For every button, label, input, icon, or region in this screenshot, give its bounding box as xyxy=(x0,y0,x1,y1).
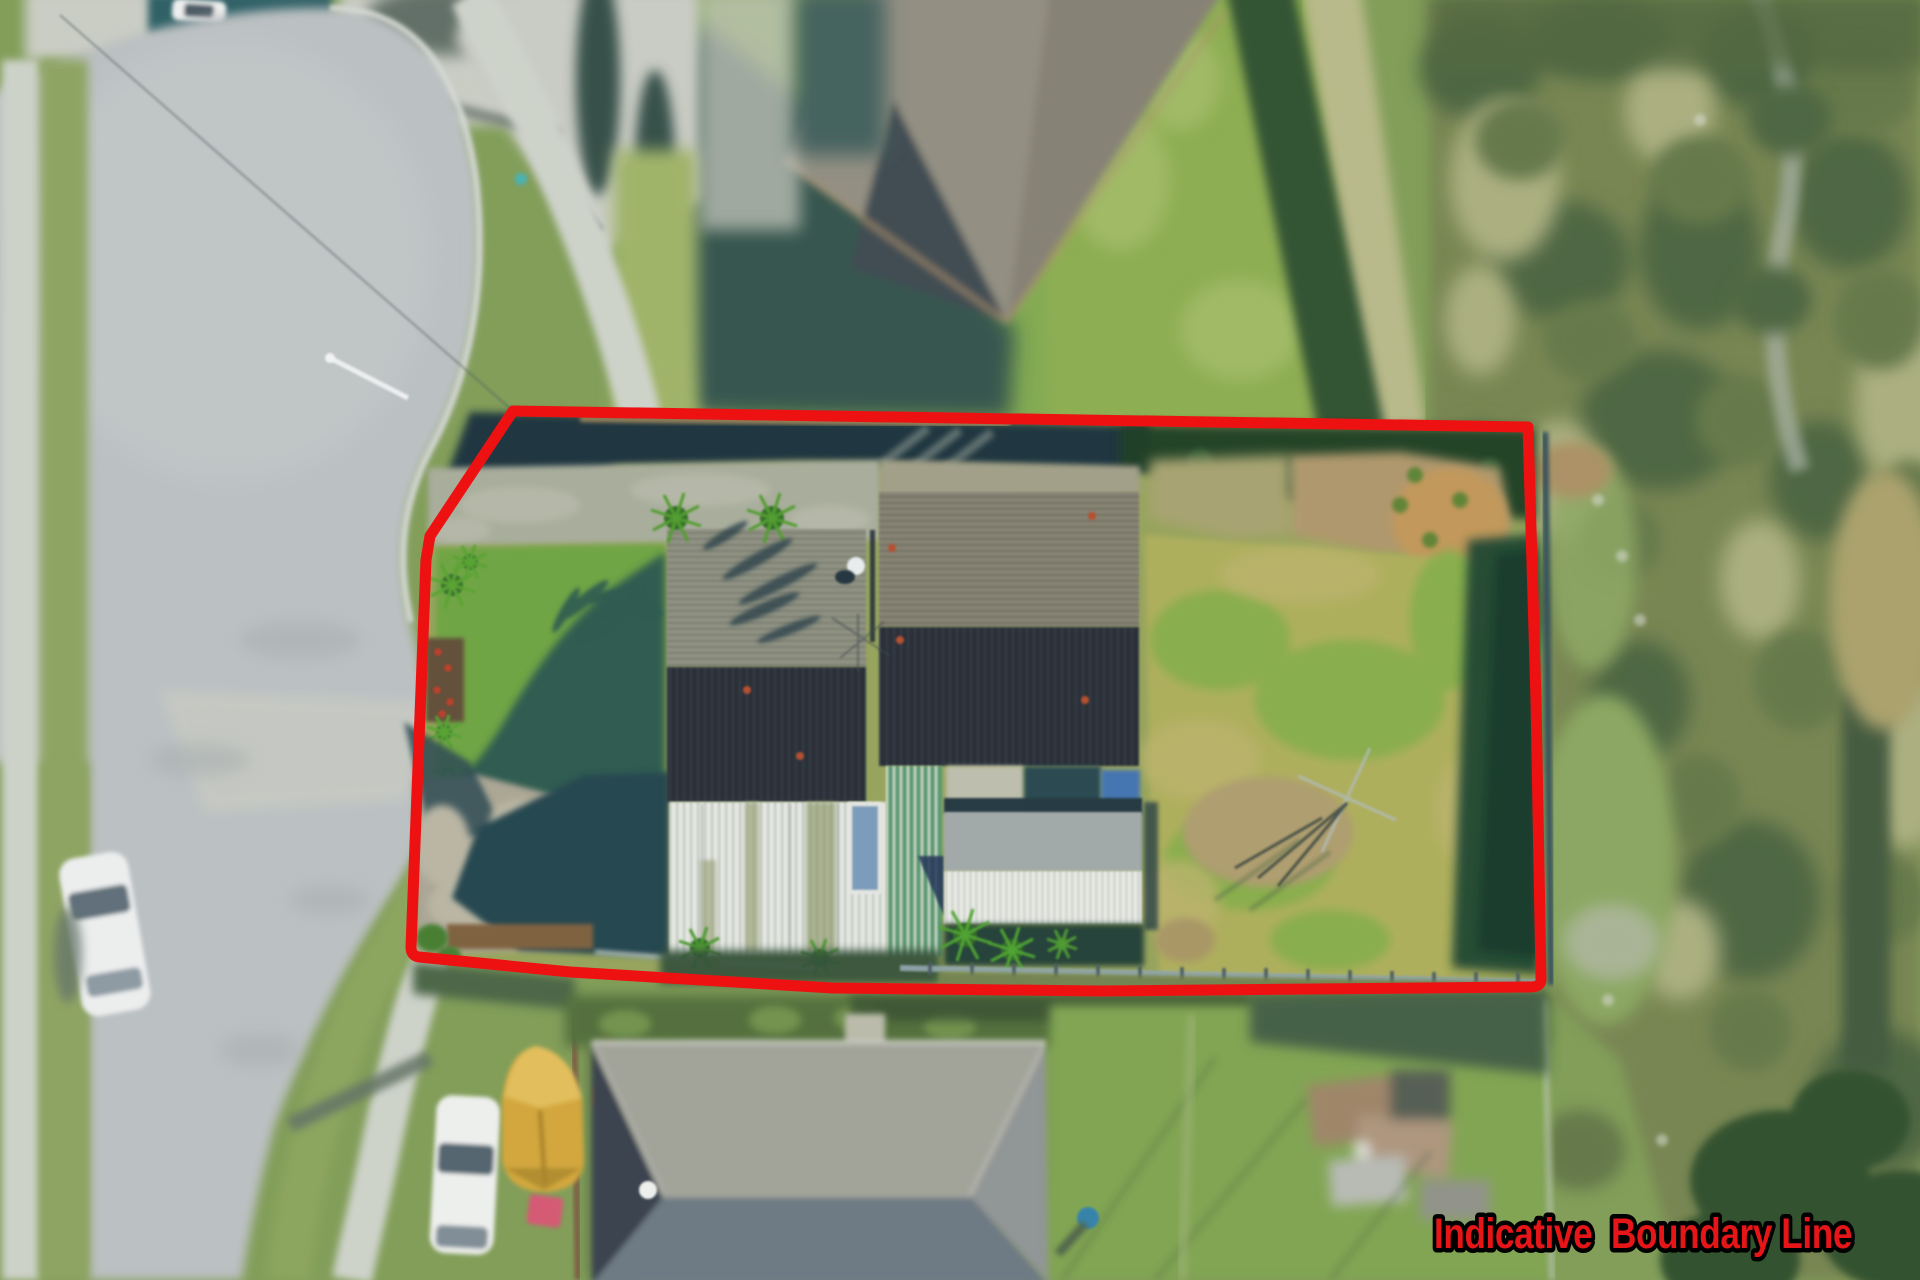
svg-text:Indicative Boundary Line: Indicative Boundary Line xyxy=(1434,1210,1852,1258)
